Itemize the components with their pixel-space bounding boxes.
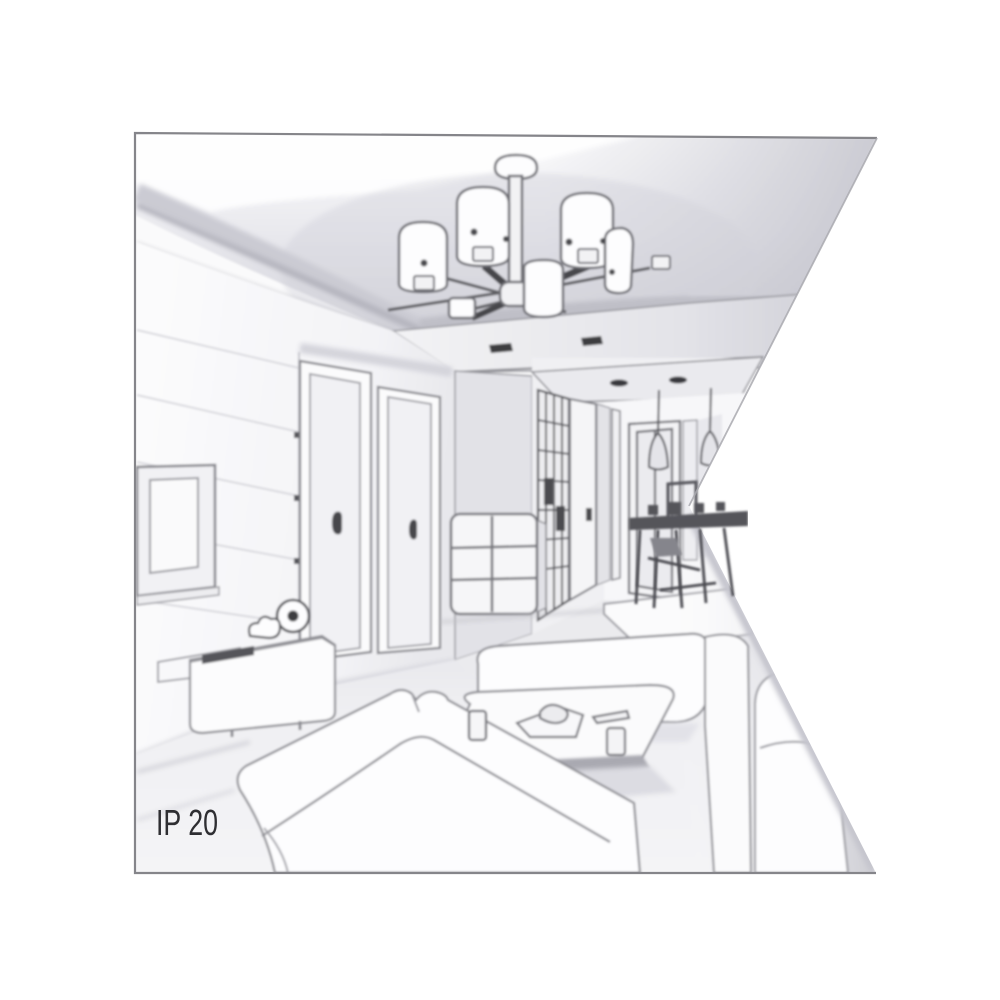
svg-text:IP 20: IP 20 [156,802,218,843]
